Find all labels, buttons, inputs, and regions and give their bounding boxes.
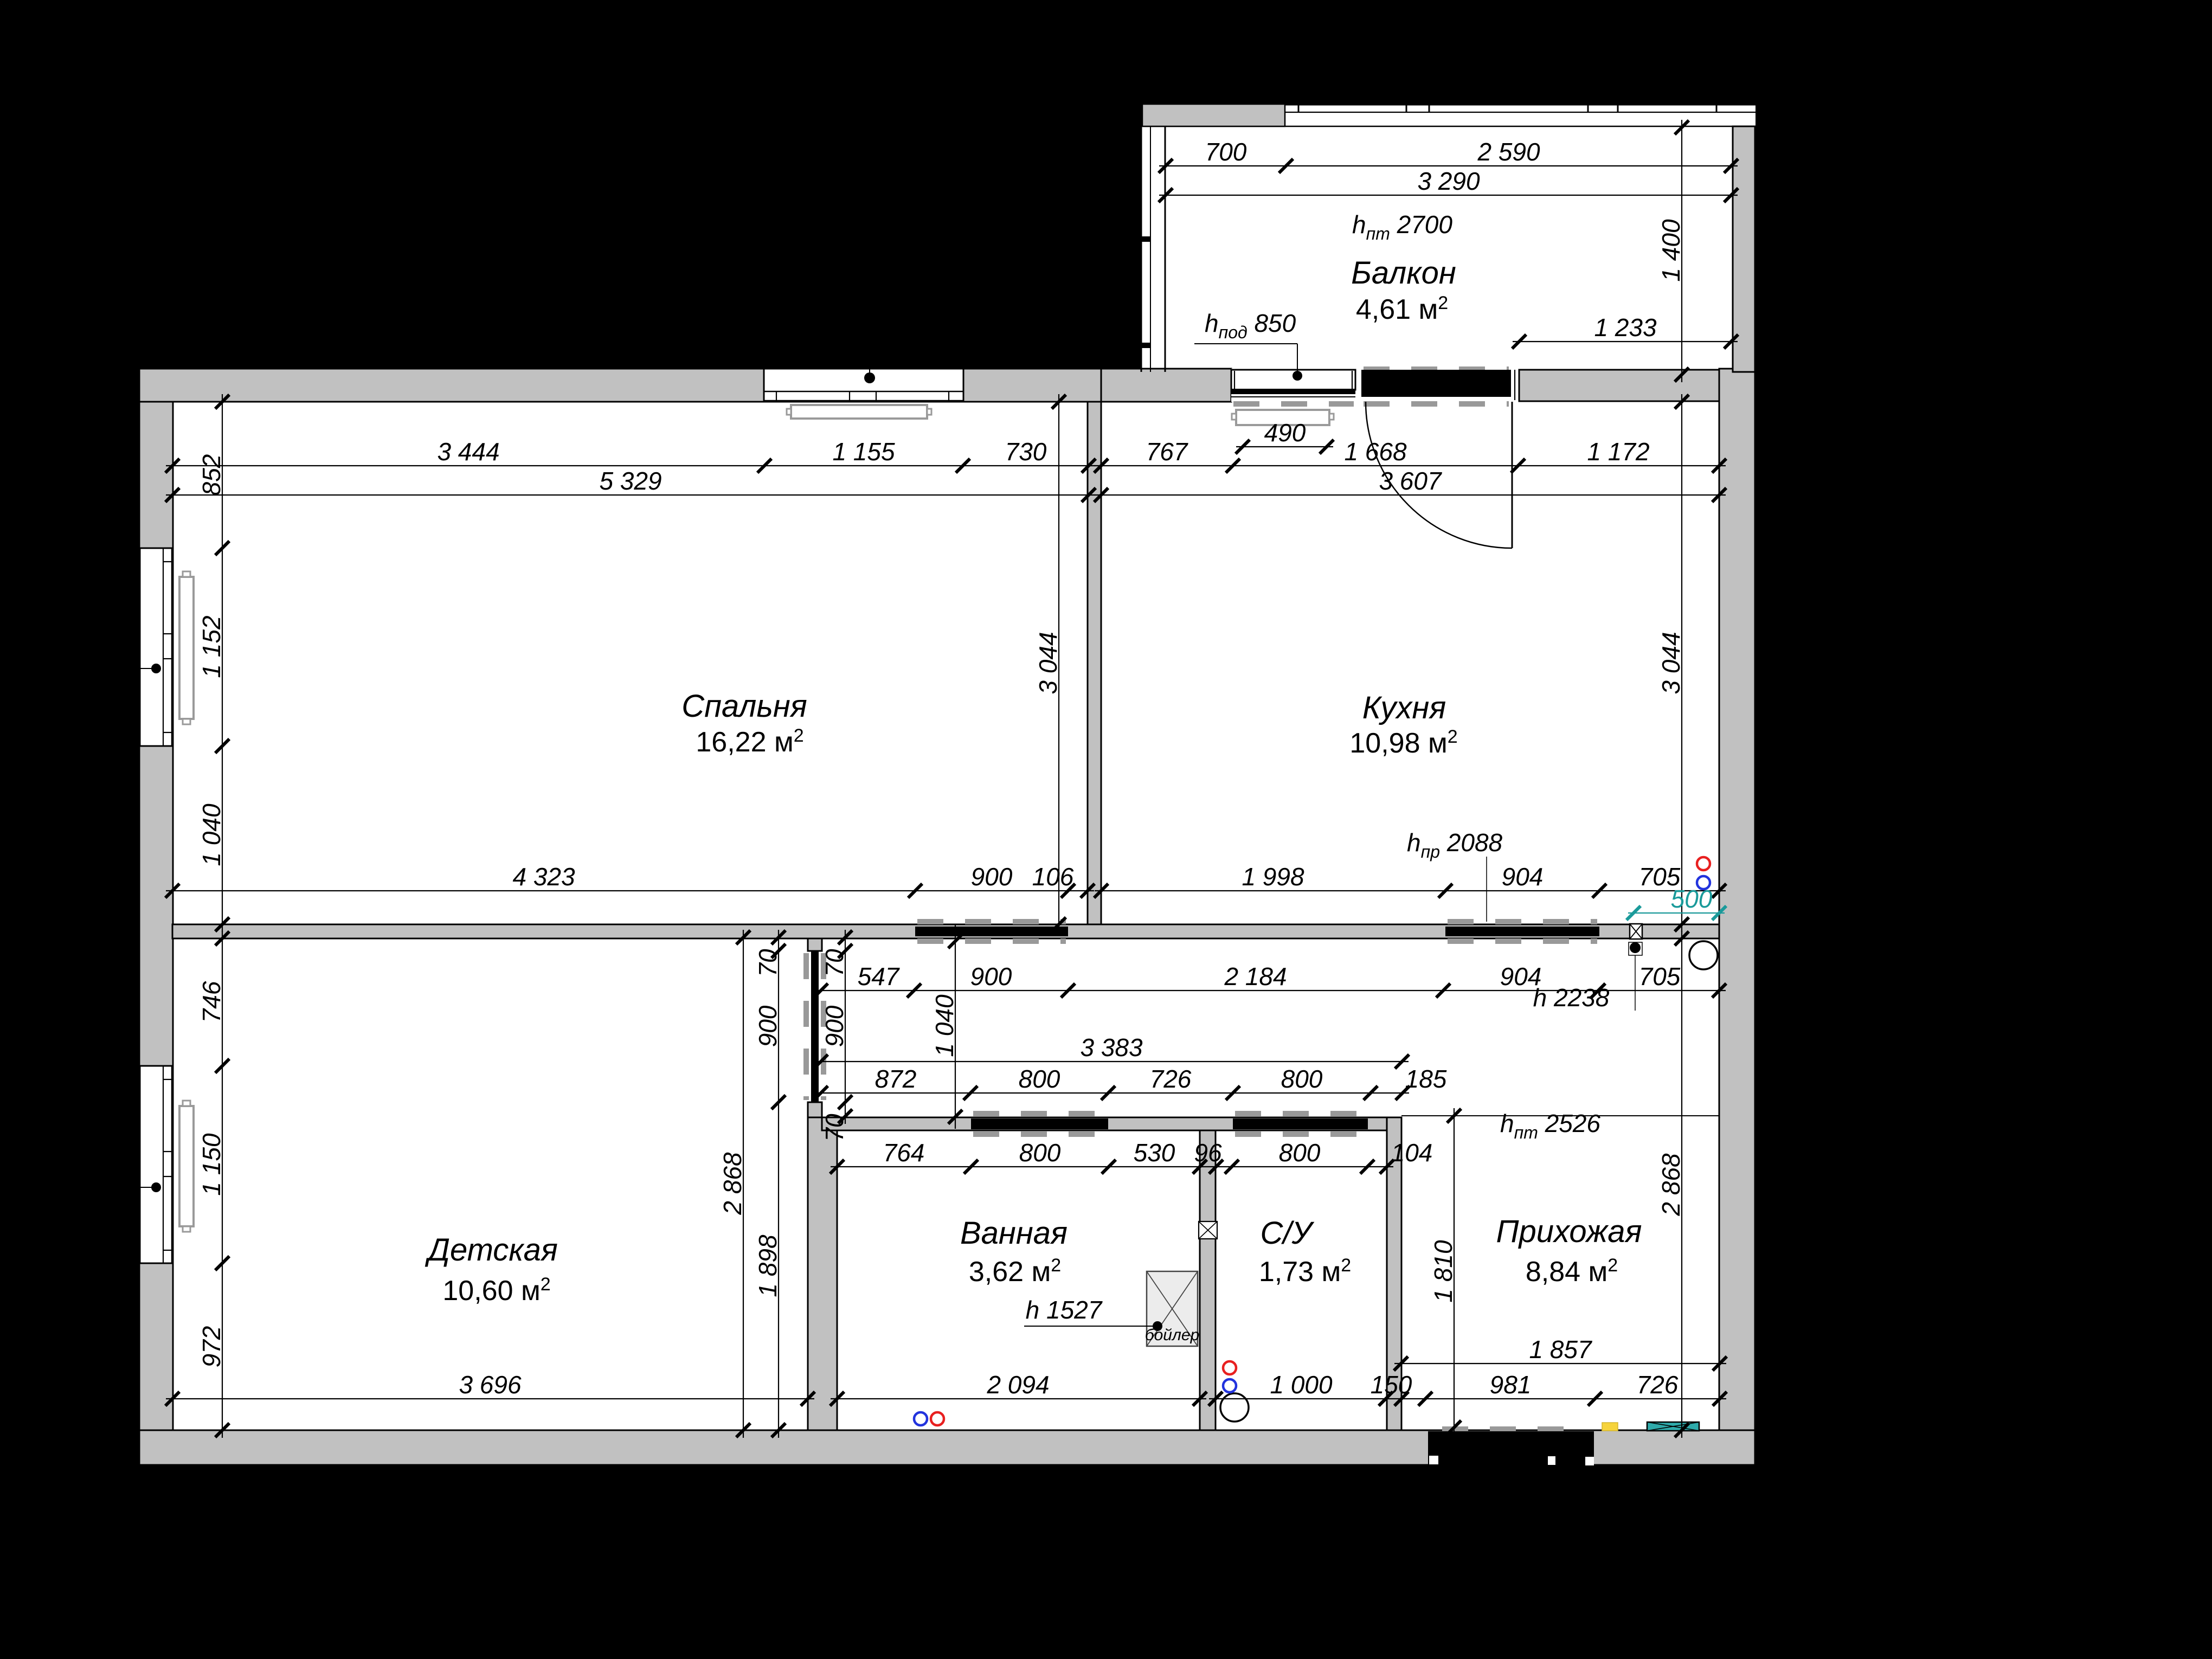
svg-text:1 233: 1 233 (1594, 313, 1657, 342)
svg-text:1 152: 1 152 (197, 615, 226, 678)
svg-text:705: 705 (1639, 962, 1681, 991)
svg-text:1 400: 1 400 (1657, 219, 1685, 282)
svg-text:104: 104 (1391, 1139, 1433, 1167)
svg-text:3 383: 3 383 (1080, 1033, 1143, 1062)
svg-text:900: 900 (820, 1005, 848, 1047)
svg-text:500: 500 (1671, 885, 1713, 913)
svg-text:800: 800 (1019, 1065, 1060, 1093)
svg-text:hпод 850: hпод 850 (1205, 309, 1296, 342)
svg-text:1 040: 1 040 (930, 994, 959, 1057)
svg-text:70: 70 (820, 949, 848, 977)
svg-text:800: 800 (1279, 1139, 1321, 1167)
svg-text:Балкон: Балкон (1351, 255, 1456, 291)
svg-text:96: 96 (1194, 1139, 1222, 1167)
svg-text:3 696: 3 696 (459, 1371, 522, 1399)
svg-text:70: 70 (754, 949, 782, 977)
svg-text:h 1527: h 1527 (1026, 1296, 1103, 1324)
svg-text:3 607: 3 607 (1379, 467, 1442, 495)
svg-text:10,60 м2: 10,60 м2 (442, 1274, 550, 1307)
svg-text:16,22 м2: 16,22 м2 (696, 725, 803, 758)
svg-text:h 2238: h 2238 (1533, 983, 1610, 1012)
svg-text:10,98 м2: 10,98 м2 (1349, 726, 1457, 759)
svg-text:150: 150 (1371, 1371, 1412, 1399)
svg-text:767: 767 (1146, 438, 1188, 466)
svg-text:800: 800 (1281, 1065, 1323, 1093)
svg-text:бойлер: бойлер (1145, 1326, 1200, 1344)
svg-text:Прихожая: Прихожая (1496, 1214, 1642, 1249)
svg-text:900: 900 (970, 962, 1012, 991)
svg-text:981: 981 (1490, 1371, 1532, 1399)
svg-text:1 000: 1 000 (1270, 1371, 1333, 1399)
svg-text:800: 800 (1019, 1139, 1061, 1167)
svg-text:106: 106 (1032, 863, 1074, 891)
svg-text:1 150: 1 150 (197, 1133, 226, 1196)
svg-text:764: 764 (883, 1139, 925, 1167)
svg-text:4,61 м2: 4,61 м2 (1356, 293, 1448, 325)
svg-text:Ванная: Ванная (960, 1216, 1068, 1251)
svg-text:2 184: 2 184 (1224, 962, 1287, 991)
svg-text:1,73 м2: 1,73 м2 (1259, 1255, 1351, 1288)
svg-text:900: 900 (754, 1005, 782, 1047)
svg-text:726: 726 (1637, 1371, 1679, 1399)
svg-text:1 172: 1 172 (1587, 438, 1649, 466)
svg-text:3 044: 3 044 (1657, 632, 1685, 694)
svg-text:2 868: 2 868 (1657, 1153, 1685, 1217)
svg-text:547: 547 (858, 962, 900, 991)
svg-text:4 323: 4 323 (512, 863, 575, 891)
svg-text:2 590: 2 590 (1477, 138, 1540, 166)
svg-text:746: 746 (197, 981, 226, 1023)
svg-text:2 094: 2 094 (986, 1371, 1049, 1399)
svg-text:700: 700 (1205, 138, 1247, 166)
svg-text:852: 852 (197, 454, 226, 496)
svg-text:185: 185 (1405, 1065, 1447, 1093)
svg-text:1 898: 1 898 (754, 1234, 782, 1297)
svg-text:1 668: 1 668 (1344, 438, 1407, 466)
svg-text:С/У: С/У (1260, 1216, 1314, 1251)
svg-text:3 444: 3 444 (437, 438, 499, 466)
svg-text:Детская: Детская (425, 1232, 558, 1268)
svg-text:1 857: 1 857 (1529, 1335, 1592, 1364)
svg-text:490: 490 (1264, 419, 1306, 447)
svg-text:Кухня: Кухня (1362, 690, 1446, 725)
svg-text:900: 900 (971, 863, 1013, 891)
svg-text:904: 904 (1502, 863, 1544, 891)
svg-text:2 868: 2 868 (718, 1152, 747, 1216)
svg-text:1 155: 1 155 (832, 438, 895, 466)
svg-text:1 040: 1 040 (197, 803, 226, 866)
svg-text:3,62 м2: 3,62 м2 (969, 1255, 1061, 1288)
svg-text:730: 730 (1005, 438, 1047, 466)
svg-text:Спальня: Спальня (681, 689, 807, 724)
svg-text:904: 904 (1500, 962, 1542, 991)
svg-text:70: 70 (820, 1114, 848, 1142)
svg-text:972: 972 (197, 1326, 226, 1368)
svg-text:3 290: 3 290 (1417, 167, 1480, 195)
svg-text:1 810: 1 810 (1429, 1240, 1457, 1303)
svg-text:530: 530 (1134, 1139, 1175, 1167)
svg-text:5 329: 5 329 (599, 467, 661, 495)
svg-text:8,84 м2: 8,84 м2 (1526, 1255, 1618, 1288)
svg-text:3 044: 3 044 (1034, 632, 1062, 694)
svg-text:872: 872 (875, 1065, 917, 1093)
svg-text:726: 726 (1150, 1065, 1192, 1093)
svg-text:1 998: 1 998 (1242, 863, 1304, 891)
